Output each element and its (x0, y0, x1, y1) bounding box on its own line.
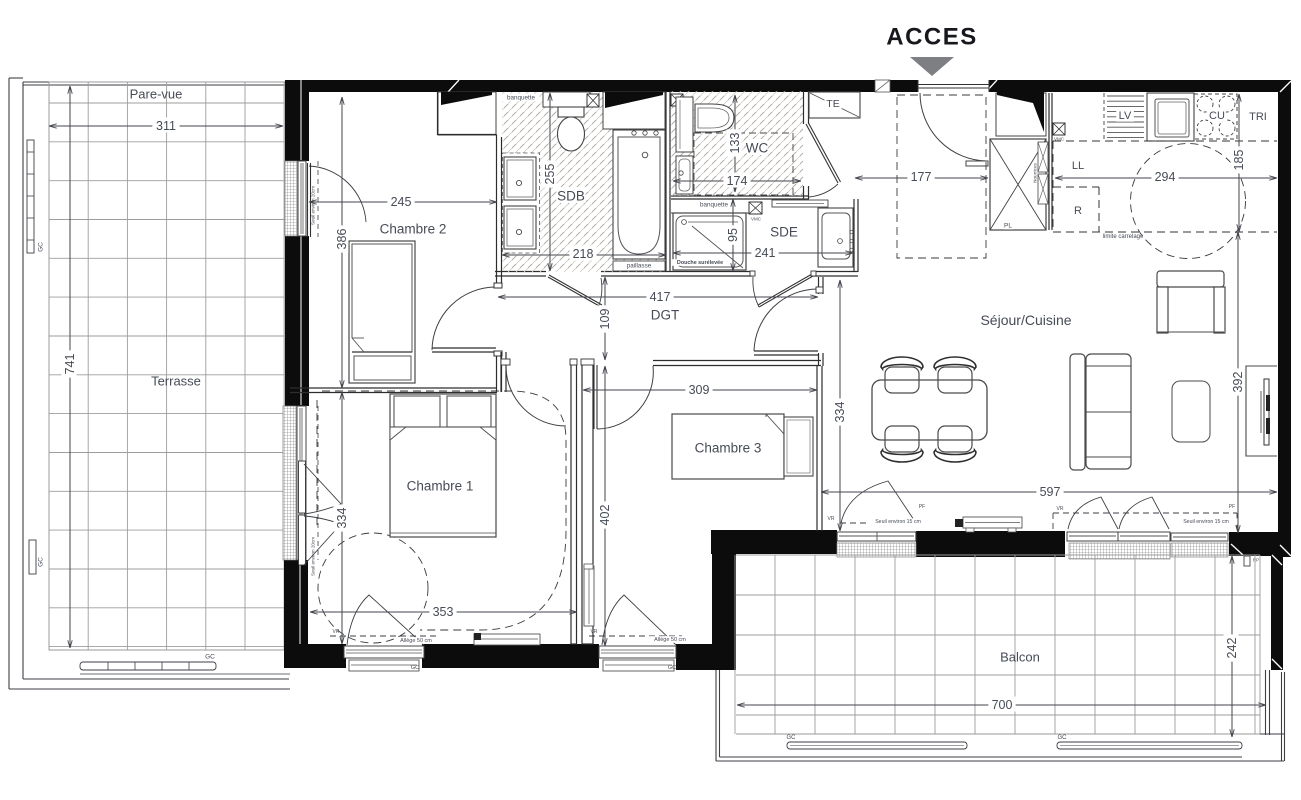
svg-text:TE: TE (826, 98, 839, 110)
svg-text:392: 392 (1231, 372, 1245, 393)
svg-text:Terrasse: Terrasse (151, 374, 201, 389)
svg-text:VMC: VMC (751, 217, 762, 222)
svg-text:PF: PF (919, 504, 925, 510)
svg-text:GC: GC (38, 557, 45, 567)
svg-text:SDE: SDE (770, 225, 798, 240)
svg-text:GC: GC (38, 242, 45, 252)
svg-text:Allège 50 cm: Allège 50 cm (400, 638, 432, 644)
svg-text:ACCES: ACCES (886, 24, 978, 51)
svg-text:417: 417 (650, 290, 671, 304)
svg-text:294: 294 (1155, 170, 1176, 184)
svg-text:185: 185 (1232, 150, 1246, 171)
svg-text:Nourrices: Nourrices (1033, 162, 1038, 182)
svg-text:Allège 50 cm: Allège 50 cm (654, 637, 686, 643)
svg-text:Seuil environ 20cm: Seuil environ 20cm (311, 537, 316, 576)
svg-text:DGT: DGT (651, 308, 680, 323)
svg-text:241: 241 (755, 246, 776, 260)
svg-text:597: 597 (1040, 485, 1061, 499)
svg-text:Chambre 2: Chambre 2 (380, 222, 447, 237)
svg-text:PF: PF (1229, 504, 1235, 510)
svg-text:CU: CU (1209, 110, 1225, 122)
svg-text:242: 242 (1225, 638, 1239, 659)
svg-text:GC: GC (668, 665, 676, 671)
svg-text:banquette: banquette (507, 95, 536, 102)
svg-text:218: 218 (573, 247, 594, 261)
svg-text:700: 700 (992, 698, 1013, 712)
svg-text:Seuil environ 15 cm: Seuil environ 15 cm (1183, 519, 1229, 525)
svg-text:LL: LL (1072, 160, 1084, 172)
svg-text:402: 402 (598, 505, 612, 526)
svg-text:177: 177 (911, 170, 932, 184)
svg-text:Balcon: Balcon (1000, 650, 1040, 665)
svg-text:Pare-vue: Pare-vue (130, 87, 183, 102)
svg-text:SDB: SDB (557, 189, 585, 204)
svg-text:Séjour/Cuisine: Séjour/Cuisine (980, 312, 1071, 328)
svg-text:GC: GC (411, 665, 419, 671)
svg-text:GC: GC (787, 735, 797, 741)
svg-text:Chambre 3: Chambre 3 (695, 441, 762, 456)
svg-text:334: 334 (335, 508, 349, 529)
svg-text:RP: RP (1253, 558, 1259, 563)
svg-text:GC: GC (1058, 735, 1068, 741)
svg-text:245: 245 (391, 195, 412, 209)
svg-text:WC: WC (746, 141, 769, 156)
svg-text:95: 95 (726, 228, 740, 242)
svg-text:paillasse: paillasse (627, 263, 652, 270)
svg-text:GC: GC (205, 654, 215, 661)
svg-text:VR: VR (333, 629, 340, 635)
svg-text:R: R (1074, 205, 1082, 217)
svg-text:133: 133 (728, 133, 742, 154)
svg-text:VR: VR (1057, 506, 1064, 512)
svg-text:VR: VR (591, 629, 598, 635)
svg-text:LV: LV (1119, 110, 1132, 122)
svg-text:741: 741 (63, 354, 77, 375)
svg-text:Douche surélevée: Douche surélevée (677, 260, 723, 266)
svg-text:309: 309 (689, 383, 710, 397)
svg-text:TRI: TRI (1249, 111, 1267, 123)
svg-text:255: 255 (543, 164, 557, 185)
svg-text:311: 311 (156, 119, 176, 133)
svg-text:Seuil environ 15 cm: Seuil environ 15 cm (875, 519, 921, 525)
svg-text:334: 334 (833, 402, 847, 423)
svg-text:174: 174 (727, 174, 748, 188)
svg-text:PL: PL (1004, 223, 1012, 230)
svg-text:Seuil environ 20cm: Seuil environ 20cm (311, 186, 316, 225)
svg-text:109: 109 (598, 309, 612, 330)
svg-text:limite carrelage: limite carrelage (1103, 234, 1144, 240)
svg-text:VR: VR (828, 516, 835, 522)
svg-text:Chambre 1: Chambre 1 (407, 479, 474, 494)
svg-text:353: 353 (433, 605, 454, 619)
svg-text:banquette: banquette (700, 202, 729, 209)
svg-text:386: 386 (335, 229, 349, 250)
